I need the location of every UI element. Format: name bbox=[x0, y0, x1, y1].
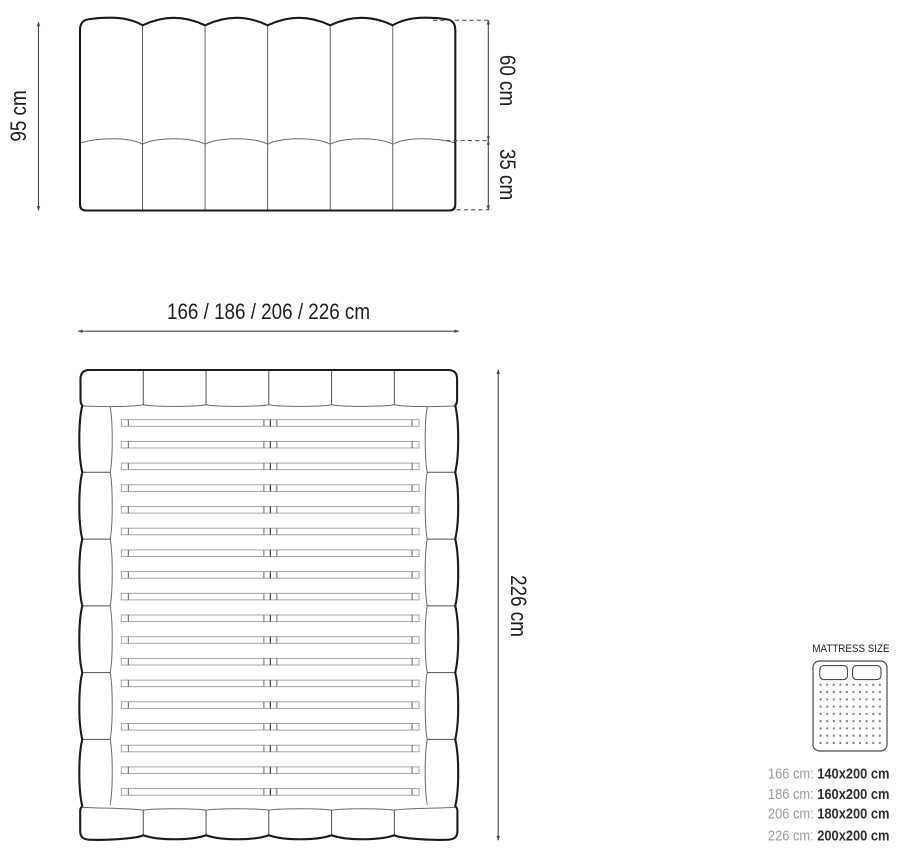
svg-text:166 cm: 140x200 cm: 166 cm: 140x200 cm bbox=[768, 766, 890, 782]
svg-text:35 cm: 35 cm bbox=[495, 149, 519, 200]
svg-text:206 cm: 180x200 cm: 206 cm: 180x200 cm bbox=[768, 806, 890, 822]
svg-text:186 cm: 160x200 cm: 186 cm: 160x200 cm bbox=[768, 786, 890, 802]
svg-text:95 cm: 95 cm bbox=[8, 90, 32, 141]
svg-text:60 cm: 60 cm bbox=[495, 55, 519, 106]
svg-text:MATTRESS SIZE: MATTRESS SIZE bbox=[812, 642, 889, 655]
svg-text:226 cm: 200x200 cm: 226 cm: 200x200 cm bbox=[768, 828, 890, 844]
svg-text:226 cm: 226 cm bbox=[506, 575, 530, 637]
svg-text:166 / 186 / 206 / 226 cm: 166 / 186 / 206 / 226 cm bbox=[167, 301, 370, 325]
